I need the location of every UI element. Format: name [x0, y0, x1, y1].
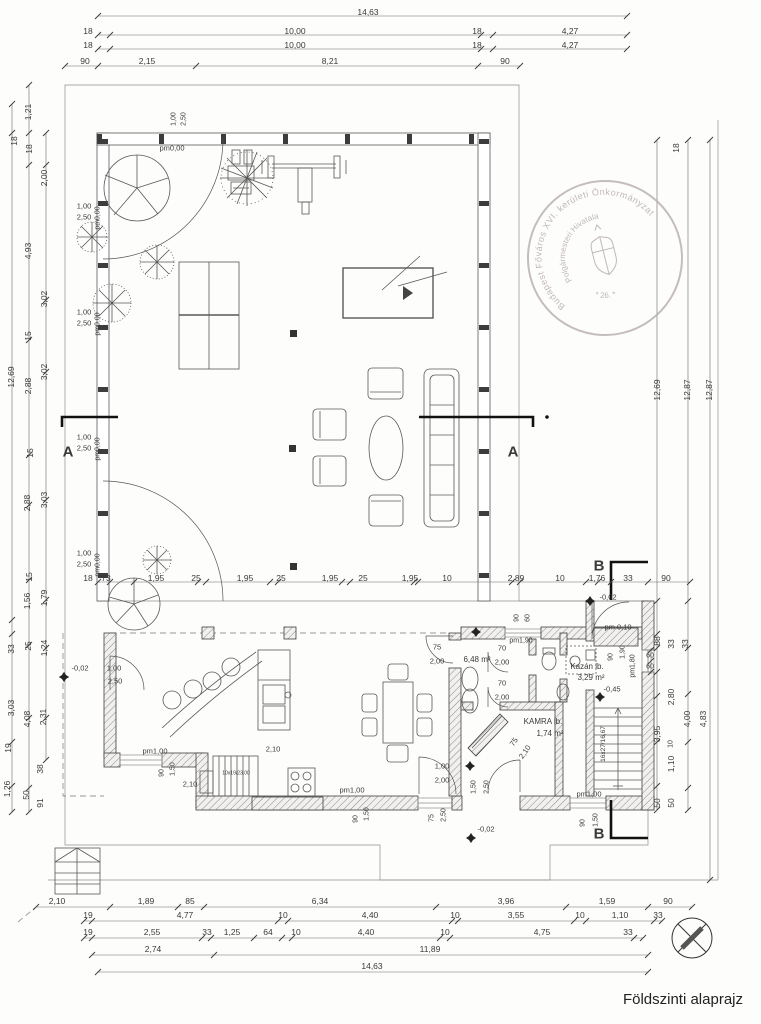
- dim-label: 6,34: [312, 897, 329, 906]
- dim-label: 10,00: [284, 27, 305, 36]
- terrace-outline: [48, 85, 718, 880]
- dim-label: 10: [555, 574, 564, 583]
- dim-label: 90: [663, 897, 672, 906]
- section-line-a: [62, 415, 549, 427]
- dim-label: 2,89: [508, 574, 525, 583]
- dim-label: 1,00: [77, 549, 92, 557]
- dim-label: 1,95: [237, 574, 254, 583]
- dim-label: -0,02: [477, 825, 494, 833]
- dim-label: 38: [36, 764, 45, 773]
- dim-label: 70: [498, 644, 506, 652]
- dim-label: 4,27: [562, 41, 579, 50]
- dim-label: 2,50: [77, 213, 92, 221]
- dim-label: 1,95: [148, 574, 165, 583]
- dim-label: 4,27: [562, 27, 579, 36]
- dim-label: 90: [353, 815, 360, 823]
- dim-label: 10: [440, 928, 449, 937]
- north-symbol: [672, 918, 712, 958]
- dim-label: 4,08: [23, 711, 32, 728]
- dim-label: 15: [24, 331, 33, 340]
- dim-label: 25: [191, 574, 200, 583]
- dim-label: 1,90: [620, 645, 627, 659]
- lower-walls: [63, 601, 654, 810]
- main-hall-walls: [97, 133, 490, 601]
- stamp-emblem-icon: [586, 222, 620, 277]
- dim-label: pm0,00: [95, 312, 102, 335]
- dim-label: 2,55: [144, 928, 161, 937]
- dim-label: 2,00: [495, 658, 510, 666]
- dim-label: pm1,00: [339, 786, 364, 794]
- dim-label: 15: [26, 448, 35, 457]
- dim-label: 18: [472, 27, 481, 36]
- gym-equipment-icon: [228, 150, 346, 214]
- dim-label: 3,02: [40, 291, 49, 308]
- dim-label: 91: [36, 798, 45, 807]
- dim-label: 2,00: [40, 170, 49, 187]
- dim-label: pm1,00: [576, 790, 601, 798]
- dim-label: 60: [646, 653, 654, 660]
- dim-label: pm0,00: [159, 144, 184, 152]
- dim-label: 1,00: [77, 433, 92, 441]
- dim-label: 18: [83, 27, 92, 36]
- dim-label: 1,00: [77, 308, 92, 316]
- dim-label: 2,50: [77, 444, 92, 452]
- dim-label: 18: [83, 574, 92, 583]
- dim-label: 1,50: [471, 780, 478, 794]
- svg-text:* 26. *: * 26. *: [592, 286, 616, 304]
- toilet-icon: [542, 648, 556, 670]
- dim-label: 4,00: [683, 711, 692, 728]
- dim-label: pm0,00: [95, 206, 102, 229]
- dim-label: 33: [681, 639, 690, 648]
- dim-label: 12,87: [683, 379, 692, 400]
- dim-label: 3,02: [40, 364, 49, 381]
- stove-icon: [288, 768, 315, 796]
- dim-label: 1,00: [171, 112, 178, 126]
- stamp-inner-text: Polgármesteri Hivatala: [548, 211, 613, 285]
- dim-label: 64: [263, 928, 272, 937]
- dim-label: 50: [22, 790, 31, 799]
- dim-label: 2,31: [39, 709, 48, 726]
- dim-label: 25: [358, 574, 367, 583]
- dim-label: pm0,00: [95, 437, 102, 460]
- exterior-stair: [55, 848, 100, 894]
- dim-label: 10: [442, 574, 451, 583]
- dim-label: 90: [514, 614, 521, 622]
- dim-label: 2,10: [266, 745, 281, 753]
- dim-label: 50: [653, 798, 662, 807]
- dim-label: 90: [159, 769, 166, 777]
- dim-label: 6,48 m²: [463, 656, 490, 664]
- dim-label: 33: [202, 928, 211, 937]
- stamp-number-text: * 26. *: [592, 286, 616, 304]
- pingpong-table: [179, 262, 239, 369]
- dim-label: 2,50: [77, 319, 92, 327]
- dimension-lines: [9, 13, 713, 975]
- dim-label: 1,50: [364, 807, 371, 821]
- bush-icon: [77, 222, 107, 252]
- dim-label: 1,25: [224, 928, 241, 937]
- dim-label: 14,63: [357, 8, 378, 17]
- dim-label: 4,75: [534, 928, 551, 937]
- dim-label: 10x19/23,00: [222, 772, 250, 777]
- dim-label: 60: [646, 664, 654, 671]
- dim-label: 3,95: [653, 726, 662, 743]
- dim-label: 16x27/16,67: [601, 726, 608, 762]
- dim-label: 1,59: [599, 897, 616, 906]
- official-stamp: Budapest Főváros XVI. kerületi Önkormány…: [512, 165, 699, 352]
- dim-label: 1,95: [402, 574, 419, 583]
- bush-icon: [140, 245, 174, 279]
- dim-label: 1,89: [138, 897, 155, 906]
- billiard-table: [343, 256, 447, 318]
- dim-label: -0,02: [599, 593, 616, 601]
- dim-label: 2,10: [183, 780, 198, 788]
- dim-label: 1,00: [435, 762, 450, 770]
- dim-label: 1,10: [667, 756, 676, 773]
- dim-label: 1,95: [322, 574, 339, 583]
- dim-label: 4,77: [177, 911, 194, 920]
- section-letter: B: [594, 559, 605, 574]
- sofa-group: [313, 368, 459, 527]
- dim-label: pm1,90: [509, 638, 532, 645]
- dim-label: 1,00: [107, 664, 122, 672]
- dim-label: 10: [278, 911, 287, 920]
- dim-label: 1,21: [24, 104, 33, 121]
- dim-label: 2,50: [77, 560, 92, 568]
- dim-label: 2,88: [23, 495, 32, 512]
- dim-label: 4,40: [358, 928, 375, 937]
- dim-label: 1,56: [23, 593, 32, 610]
- dim-label: 25: [24, 641, 33, 650]
- dim-label: 75: [429, 814, 436, 822]
- dim-label: 1,79: [40, 590, 49, 607]
- dim-label: KAMRA lb.: [524, 718, 563, 726]
- dim-label: 2,50: [441, 808, 448, 822]
- dim-label: 10: [668, 740, 675, 748]
- dim-label: 3,96: [498, 897, 515, 906]
- dim-label: pm 0,10: [604, 623, 631, 631]
- dim-label: 2,50: [484, 780, 491, 794]
- dim-label: 33: [623, 574, 632, 583]
- dim-label: 90: [661, 574, 670, 583]
- dim-label: 18: [672, 143, 681, 152]
- dim-label: 15: [25, 572, 34, 581]
- dim-label: 33: [667, 639, 676, 648]
- dim-label: 19: [83, 928, 92, 937]
- dim-label: 2,15: [139, 57, 156, 66]
- dim-label: 10: [450, 911, 459, 920]
- bush-icon: [143, 546, 171, 574]
- dim-label: 19: [83, 911, 92, 920]
- section-letter: A: [508, 445, 519, 460]
- dim-label: 18: [25, 144, 34, 153]
- dim-label: 33: [653, 911, 662, 920]
- dim-label: 1,24: [40, 640, 49, 657]
- dim-label: -0,45: [603, 685, 620, 693]
- dim-label: 1,50: [170, 762, 177, 776]
- dim-label: 2,00: [430, 657, 445, 665]
- dim-label: 12,69: [653, 379, 662, 400]
- dim-label: 90: [608, 653, 615, 661]
- section-letter: A: [63, 445, 74, 460]
- dim-label: 1,00: [77, 202, 92, 210]
- dim-label: 2,74: [145, 945, 162, 954]
- dim-label: 25: [276, 574, 285, 583]
- dim-label: 2,10: [49, 897, 66, 906]
- dim-label: 50: [667, 798, 676, 807]
- dim-label: 18: [472, 41, 481, 50]
- dim-label: 18: [83, 41, 92, 50]
- dim-label: Kazán lb.: [570, 663, 603, 671]
- dim-label: 90: [80, 57, 89, 66]
- dim-label: 4,93: [24, 243, 33, 260]
- dim-label: 60: [525, 614, 532, 622]
- dim-label: 18: [10, 136, 19, 145]
- dim-label: 70: [498, 679, 506, 687]
- dim-label: 33: [623, 928, 632, 937]
- columns: [289, 330, 297, 570]
- dim-label: 2,00: [495, 693, 510, 701]
- dim-label: 10,00: [284, 41, 305, 50]
- svg-text:Polgármesteri Hivatala: Polgármesteri Hivatala: [548, 211, 613, 285]
- dim-label: 4,40: [362, 911, 379, 920]
- drawing-title: Földszinti alaprajz: [623, 991, 743, 1008]
- dim-label: 2,80: [667, 689, 676, 706]
- dim-label: 8,21: [322, 57, 339, 66]
- dim-label: pm1,00: [142, 747, 167, 755]
- dim-label: -0,02: [71, 664, 88, 672]
- dim-label: 73: [101, 574, 110, 583]
- dim-label: 1,26: [3, 781, 12, 798]
- dim-label: 85: [185, 897, 194, 906]
- dim-label: 19: [4, 743, 13, 752]
- dim-label: 3,03: [40, 492, 49, 509]
- dim-label: 1,10: [612, 911, 629, 920]
- dim-label: 3,03: [7, 700, 16, 717]
- floorplan-page: Budapest Főváros XVI. kerületi Önkormány…: [0, 0, 761, 1024]
- dim-label: 33: [7, 644, 16, 653]
- dim-label: 90: [580, 819, 587, 827]
- dim-label: 2,88: [24, 378, 33, 395]
- floorplan-drawing: Budapest Főváros XVI. kerületi Önkormány…: [0, 0, 761, 1024]
- dim-label: 12,87: [705, 379, 714, 400]
- dim-label: 3,29 m²: [577, 674, 604, 682]
- dim-label: pm1,80: [630, 654, 637, 677]
- dining-table-group: [362, 664, 432, 762]
- dim-label: 4,83: [699, 711, 708, 728]
- dim-label: 90: [500, 57, 509, 66]
- dim-label: 2,50: [181, 112, 188, 126]
- dim-label: 14,63: [361, 962, 382, 971]
- dim-label: 10: [291, 928, 300, 937]
- dim-label: 1,74 m²: [536, 730, 563, 738]
- dim-label: 10: [575, 911, 584, 920]
- dim-label: 1,76: [589, 574, 606, 583]
- dim-label: 11,89: [420, 945, 441, 954]
- dim-label: 12,69: [7, 366, 16, 387]
- dim-label: 3,55: [508, 911, 525, 920]
- dim-label: 75: [433, 643, 441, 651]
- dim-label: 2,00: [435, 776, 450, 784]
- dim-label: 2,50: [108, 677, 123, 685]
- dim-label: 88: [653, 636, 662, 645]
- section-letter: B: [594, 827, 605, 842]
